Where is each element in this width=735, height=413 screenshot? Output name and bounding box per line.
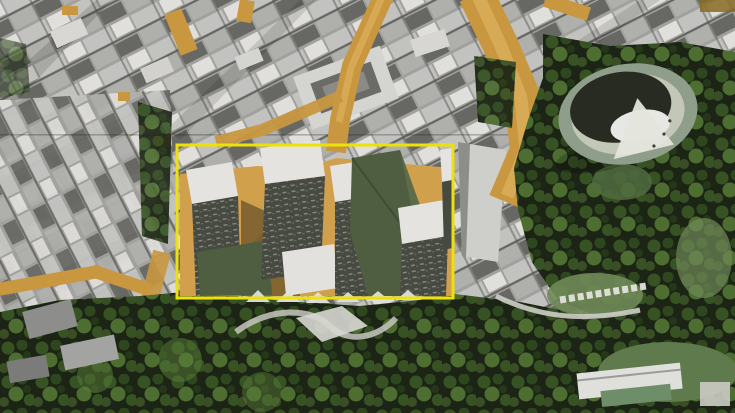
photo-haze-overlay <box>0 0 735 413</box>
aerial-photo <box>0 0 735 413</box>
aerial-scene-canvas <box>0 0 735 413</box>
